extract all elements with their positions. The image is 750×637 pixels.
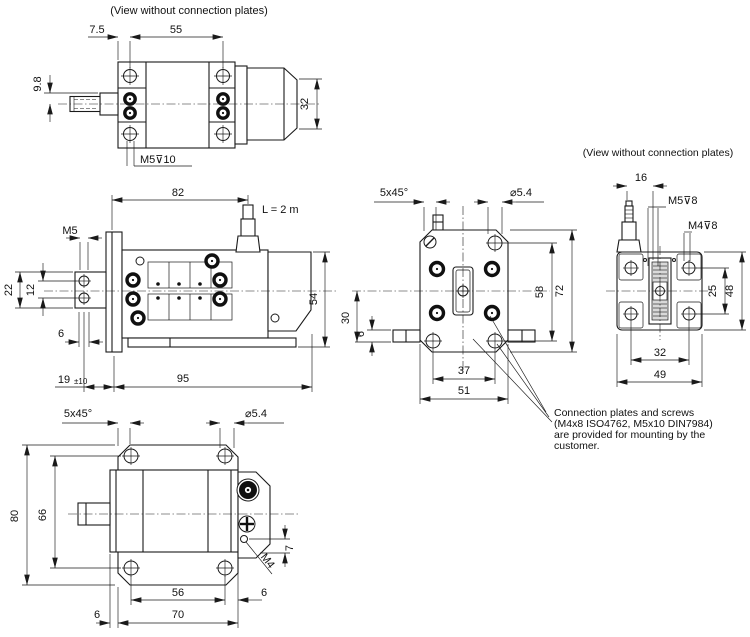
dim-label-6-right: 6 (261, 587, 267, 599)
dim-label-80: 80 (9, 510, 21, 522)
dim-label-55: 55 (170, 24, 182, 36)
thread-label-m5-10: M5⊽10 (140, 154, 176, 166)
dim-label-95: 95 (177, 373, 189, 385)
dim-label-7-5: 7.5 (89, 24, 104, 36)
dim-tol-19: ±10 (74, 377, 88, 386)
dim-label-30: 30 (340, 312, 352, 324)
dim-label-66: 66 (37, 509, 49, 521)
view-e-note: (View without connection plates) (583, 147, 733, 159)
technical-drawing-page: (View without connection plates) (0, 0, 750, 637)
dim-label-32-e: 32 (654, 347, 666, 359)
dim-label-51: 51 (458, 385, 470, 397)
dim-label-6-b: 6 (58, 328, 64, 340)
dim-label-19: 19 (58, 374, 70, 386)
dim-label-12: 12 (25, 284, 37, 296)
dim-label-9-8: 9.8 (32, 76, 44, 91)
dim-label-82: 82 (172, 187, 184, 199)
dim-label-54: 54 (308, 293, 320, 305)
hole-dia-label-c: ⌀5.4 (245, 408, 267, 420)
dim-label-16: 16 (635, 172, 647, 184)
chamfer-label-c: 5x45° (64, 408, 92, 420)
dim-label-70: 70 (172, 609, 184, 621)
dim-label-32-a: 32 (299, 98, 311, 110)
chamfer-label-d: 5x45° (380, 187, 408, 199)
dim-label-25: 25 (707, 285, 719, 297)
thread-label-m5-8: M5⊽8 (668, 195, 697, 207)
dim-label-37: 37 (458, 365, 470, 377)
dim-label-56: 56 (172, 587, 184, 599)
hole-dia-label-d: ⌀5.4 (510, 187, 532, 199)
dim-label-7: 7 (284, 545, 296, 551)
view-a-note: (View without connection plates) (110, 5, 268, 17)
cable-length-label: L = 2 m (262, 204, 299, 216)
dim-label-6-d: 6 (355, 331, 367, 337)
dim-label-49: 49 (654, 369, 666, 381)
dim-label-22: 22 (3, 284, 15, 296)
dim-label-72: 72 (554, 285, 566, 297)
mounting-note-line4: customer. (554, 440, 600, 452)
thread-label-m4-8: M4⊽8 (688, 220, 717, 232)
dimension-drawing: (View without connection plates) (0, 0, 750, 637)
dim-label-6-left: 6 (94, 609, 100, 621)
dim-label-58: 58 (534, 286, 546, 298)
dim-label-48: 48 (724, 285, 736, 297)
thread-label-m5: M5 (62, 225, 77, 237)
